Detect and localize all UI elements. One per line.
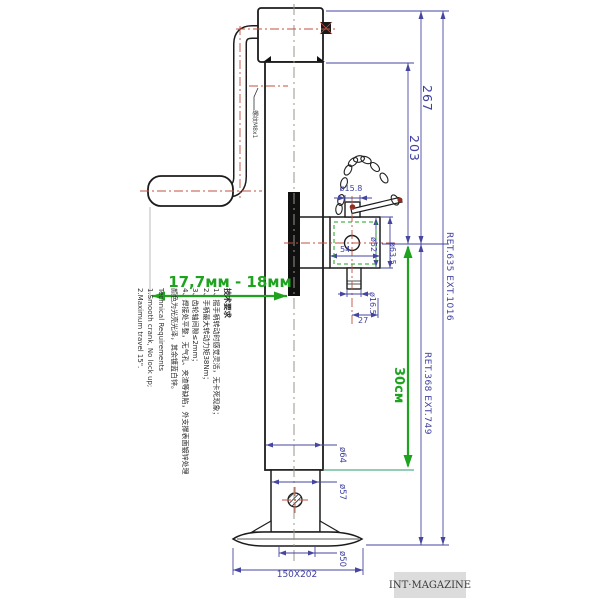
technical-drawing-trailer-jack: 267 203 RET.635 EXT.1016 RET.368 EXT.749… [0,0,600,600]
thread-leader-line [254,88,258,110]
notes-en-line: 1.Smooth crank, No lock up; [145,288,156,438]
watermark-badge: INT·MAGAZINE [394,572,466,598]
notes-en-line: 2.Maximum travel 15". [135,288,146,438]
watermark-text: INT·MAGAZINE [389,580,471,591]
notes-en-title: Technical Requirements [156,288,167,438]
notes-cn-line: 3、齿轮轴间隙≤2mm； [190,288,201,438]
dim-label-64: ø64 [338,447,347,463]
pin-bottom [347,268,361,289]
dim-label-ret-outer: RET.635 EXT.1016 [444,232,453,321]
dim-label-267: 267 [421,85,434,112]
dim-label-27: 27 [358,317,368,325]
dim-label-52: ø52 [369,237,377,252]
pin-handle-end-dot [398,198,403,203]
foot-gusset-left [252,521,271,532]
dim-label-30cm: 30см [391,367,406,403]
notes-cn-line: 1、摇手柄转动时感觉灵活，无卡死现象； [211,288,222,438]
dim-label-57: ø57 [338,484,347,500]
foot-gusset-right [320,521,339,532]
notes-cn-line: 颜色为光亮光泽，其余镀蓝白锌。 [169,288,180,438]
dim-label-base-plate: 150X202 [266,571,328,580]
gearbox-head [258,8,323,62]
dim-label-63-5: ø63.5 [388,242,396,265]
dim-label-ret-inner: RET.368 EXT.749 [422,352,431,435]
technical-notes-block: 技术要求 1、摇手柄转动时感觉灵活，无卡死现象； 2、手柄最大转动力矩38Nm；… [135,288,233,438]
dim-label-pin-top: ø15.8 [335,185,367,193]
dim-label-54: 54 [340,246,350,254]
notes-cn-title: 技术要求 [222,288,233,438]
dim-label-16-5: ø16.5 [368,292,376,315]
pin-head-dot [350,204,356,210]
dim-label-203: 203 [408,135,421,162]
drawing-canvas [0,0,600,600]
dim-label-50: ø50 [338,551,347,567]
thread-callout-label: 螺纹M8x1 [251,110,260,138]
notes-cn-line: 2、手柄最大转动力矩38Nm； [201,288,212,438]
notes-cn-line: 4、焊接处平整，无气孔、夹渣等缺陷，外支撑表面镀锌处理 [180,288,191,438]
